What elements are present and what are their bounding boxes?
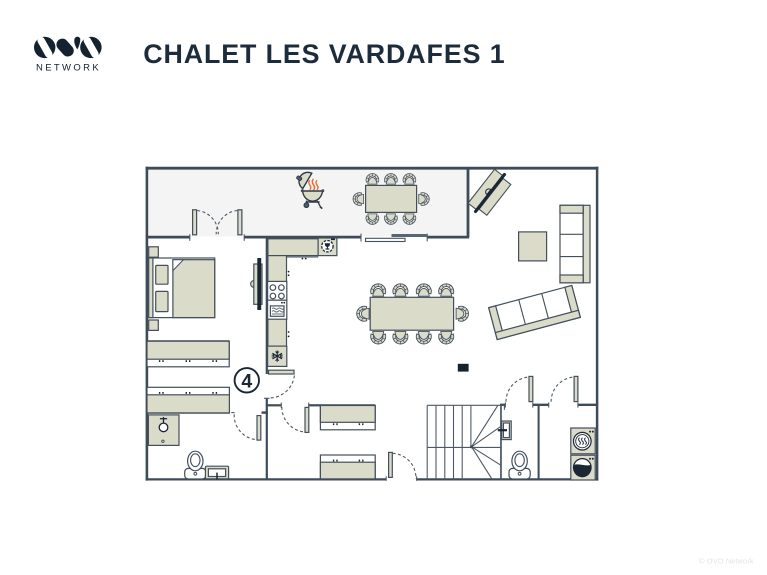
svg-text:© OVO Network: © OVO Network bbox=[699, 557, 754, 566]
svg-text:CHALET LES VARDAFES 1: CHALET LES VARDAFES 1 bbox=[143, 39, 505, 69]
svg-text:4: 4 bbox=[241, 370, 252, 392]
svg-text:NETWORK: NETWORK bbox=[36, 62, 101, 73]
